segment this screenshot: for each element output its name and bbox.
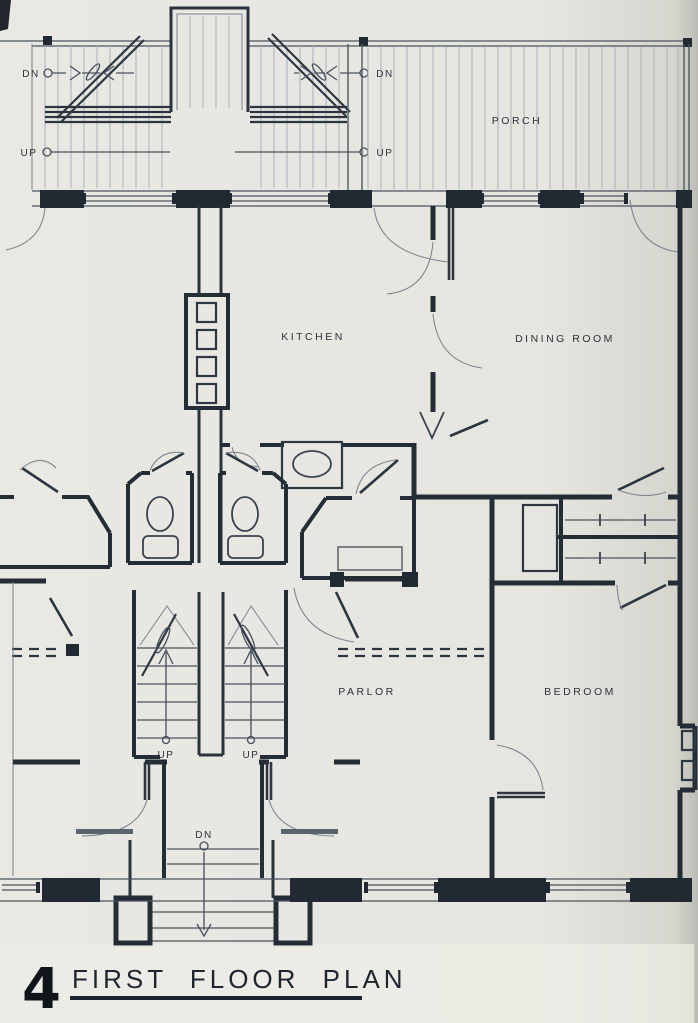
stair-label-up-main-left: UP — [158, 750, 175, 761]
paper-background — [0, 0, 698, 1023]
stair-label-up-main-right: UP — [243, 750, 260, 761]
room-label-bedroom: BEDROOM — [544, 686, 616, 698]
floor-plan-page: DN UP DN UP PORCH — [0, 0, 698, 1023]
stair-label-dn-stoop: DN — [195, 830, 212, 841]
door-threshold — [76, 829, 133, 834]
drawing-title: FIRST FLOOR PLAN — [72, 964, 407, 994]
stair-label-up-right: UP — [377, 148, 394, 159]
title-underline — [70, 996, 362, 1000]
room-label-parlor: PARLOR — [338, 686, 395, 698]
room-label-kitchen: KITCHEN — [281, 331, 345, 343]
floor-plan-drawing: DN UP DN UP PORCH — [0, 0, 698, 1023]
stair-label-dn-left: DN — [22, 69, 39, 80]
stair-label-up-left: UP — [21, 148, 38, 159]
stair-label-dn-right: DN — [376, 69, 393, 80]
porch-post — [359, 37, 368, 46]
porch-post — [43, 36, 52, 45]
room-label-porch: PORCH — [492, 115, 542, 127]
sheet-number: 4 — [22, 957, 61, 1022]
room-label-dining: DINING ROOM — [515, 333, 615, 345]
door-threshold — [281, 829, 338, 834]
